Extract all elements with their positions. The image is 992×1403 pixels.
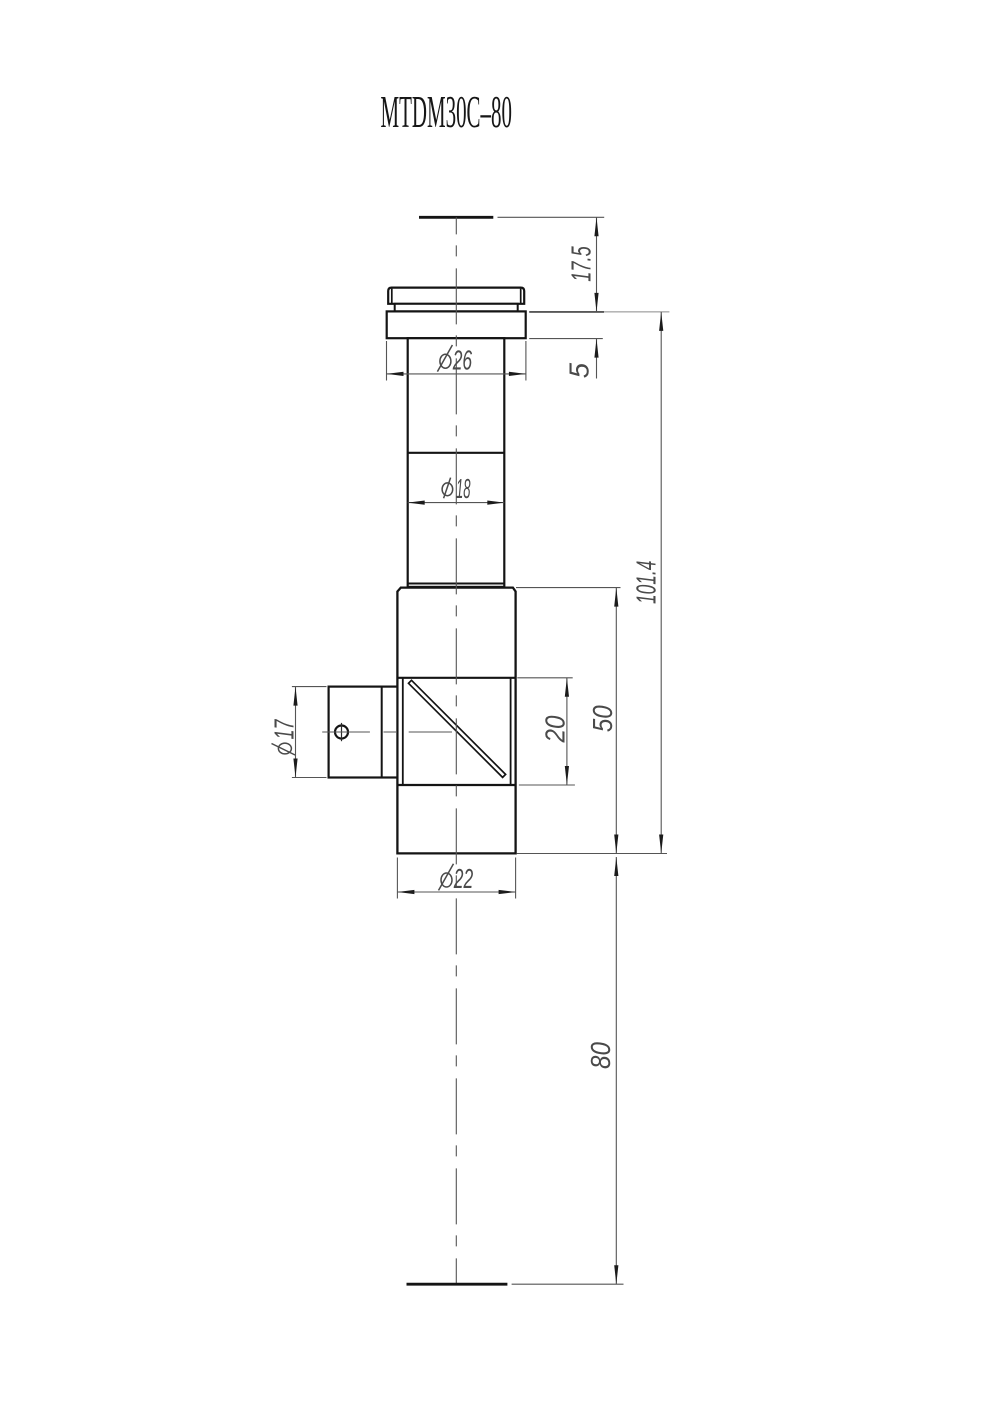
svg-text:80: 80 — [585, 1041, 616, 1069]
svg-text:MTDM30C–80: MTDM30C–80 — [380, 86, 512, 137]
svg-text:18: 18 — [456, 473, 471, 504]
svg-text:22: 22 — [453, 863, 473, 894]
svg-text:20: 20 — [540, 715, 571, 744]
svg-text:17.5: 17.5 — [566, 246, 597, 282]
svg-text:50: 50 — [587, 705, 618, 732]
svg-text:26: 26 — [452, 344, 472, 375]
svg-text:17: 17 — [268, 718, 299, 739]
svg-text:101.4: 101.4 — [631, 561, 662, 604]
svg-text:5: 5 — [564, 362, 595, 378]
